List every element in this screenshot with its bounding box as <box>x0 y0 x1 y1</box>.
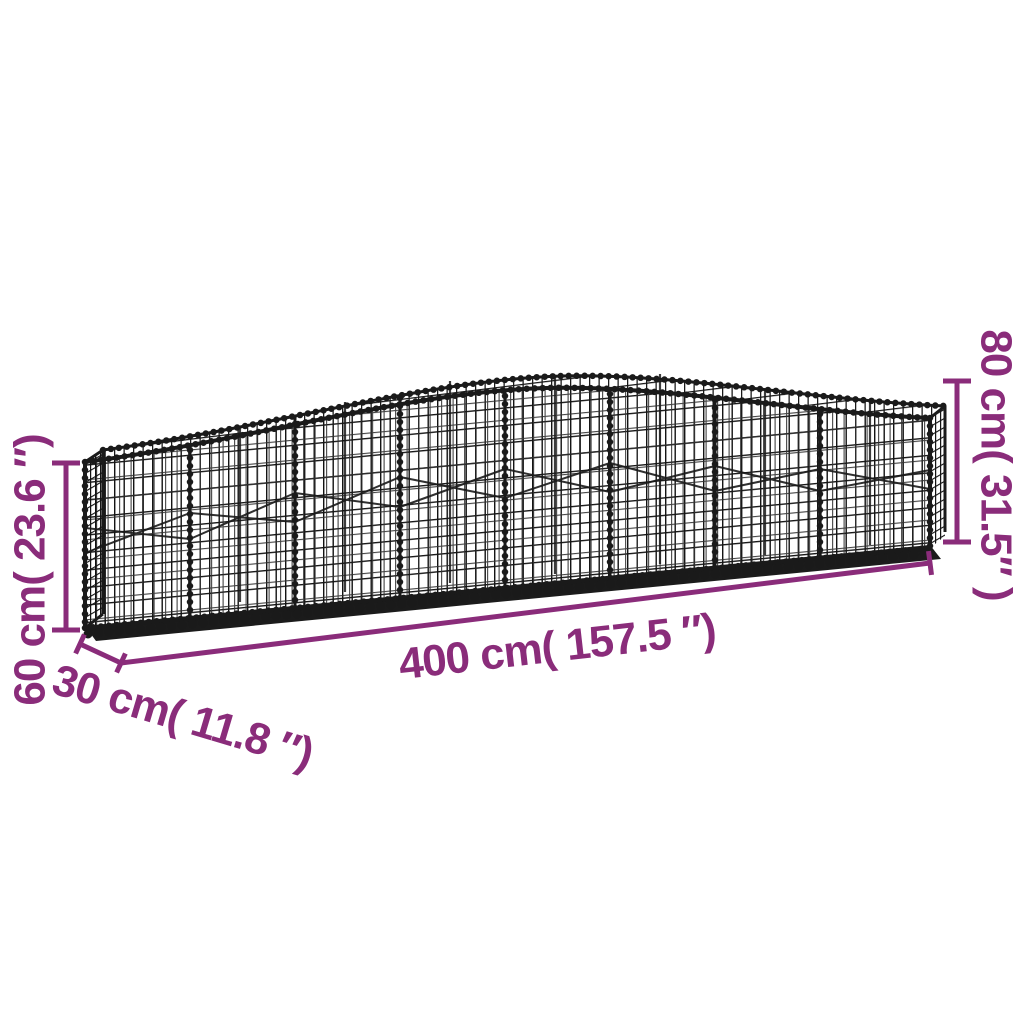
dimension-peak-height-label: 80 cm( 31.5″ ) <box>972 329 1021 600</box>
dimension-end-height-line <box>52 463 80 630</box>
gabion-diagram-canvas: 60 cm( 23.6 ″) 80 cm( 31.5″ ) 400 cm( 15… <box>0 0 1024 1024</box>
dimension-peak-height-line <box>943 381 971 542</box>
product-dimension-diagram: 60 cm( 23.6 ″) 80 cm( 31.5″ ) 400 cm( 15… <box>0 0 1024 1024</box>
dimension-length-label: 400 cm( 157.5 ″) <box>396 605 718 690</box>
gabion-basket-illustration <box>85 374 945 641</box>
dimension-depth-label: 30 cm( 11.8 ″) <box>47 655 319 778</box>
dimension-end-height-label: 60 cm( 23.6 ″) <box>5 434 54 705</box>
